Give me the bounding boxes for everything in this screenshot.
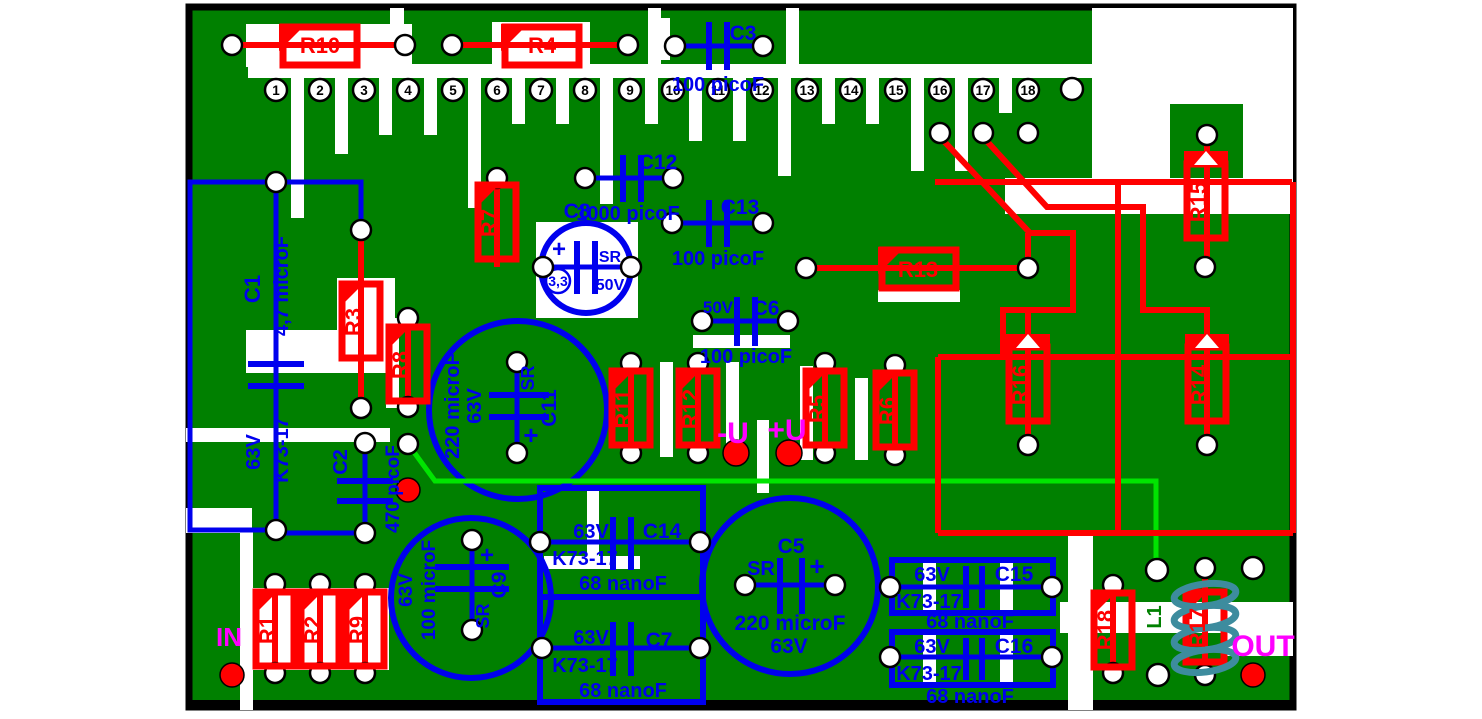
svg-text:5: 5: [449, 83, 457, 98]
pad: [930, 123, 950, 143]
voltage-C16: 63V: [914, 636, 950, 658]
value-C14: 68 nanoF: [579, 573, 667, 595]
type-C14: K73-17: [552, 548, 618, 570]
svg-text:13: 13: [799, 83, 815, 98]
label-R3: R3: [341, 308, 366, 336]
pad: [1018, 435, 1038, 455]
type-C15: K73-17: [896, 591, 962, 613]
label-C11: C11: [538, 389, 561, 427]
pad: [442, 35, 462, 55]
label-R9: R9: [345, 616, 370, 644]
label-R17: R17: [1185, 608, 1210, 648]
voltage-C14: 63V: [573, 521, 609, 543]
pin-7: 7: [530, 79, 552, 101]
voltage-C1: 63V: [243, 434, 265, 470]
pad: [266, 520, 286, 540]
svg-text:17: 17: [975, 83, 990, 98]
voltage-C15: 63V: [914, 564, 950, 586]
svg-text:4: 4: [404, 83, 412, 98]
value-C3: 100 picoF: [672, 74, 764, 96]
pad: [355, 433, 375, 453]
label-C9: C9: [488, 572, 511, 599]
pad: [355, 523, 375, 543]
pin-13: 13: [796, 79, 818, 101]
label-R6: R6: [875, 397, 900, 425]
label-C16: C16: [995, 635, 1034, 658]
label-plus-u: +U: [767, 414, 806, 447]
plus-C5: +: [809, 551, 824, 581]
value-C6: 100 picoF: [700, 346, 792, 368]
marking-C11: SR: [518, 365, 538, 390]
voltage-C11: 63V: [464, 388, 486, 424]
value-C11: 220 microF: [442, 353, 464, 459]
pad: [395, 35, 415, 55]
type-C7: K73-17: [552, 655, 618, 677]
pin-17: 17: [972, 79, 994, 101]
label-C13: C13: [721, 196, 760, 219]
marking-C8: SR: [599, 249, 622, 266]
pad: [665, 36, 685, 56]
pad: [1197, 435, 1217, 455]
pad: [690, 532, 710, 552]
pin-9: 9: [619, 79, 641, 101]
label-R15: R15: [1186, 182, 1211, 222]
value-C16: 68 nanoF: [926, 686, 1014, 708]
plus-C8: +: [552, 236, 566, 263]
pad: [222, 35, 242, 55]
pin-18: 18: [1017, 79, 1039, 101]
pad: [1195, 558, 1215, 578]
value-C1: 4,7 microF: [271, 236, 293, 336]
label-in: IN: [216, 622, 242, 652]
label-R1: R1: [255, 616, 280, 644]
pin-16: 16: [929, 79, 951, 101]
label-R16: R16: [1008, 365, 1033, 405]
label-R13: R13: [898, 257, 938, 282]
plus-C9: +: [480, 542, 494, 569]
label-R7: R7: [477, 209, 502, 237]
pad: [1018, 123, 1038, 143]
svg-text:6: 6: [493, 83, 501, 98]
pad: [351, 398, 371, 418]
pin-8: 8: [574, 79, 596, 101]
plus-C11: +: [523, 420, 538, 450]
pin-3: 3: [353, 79, 375, 101]
pin-2: 2: [309, 79, 331, 101]
svg-text:9: 9: [626, 83, 634, 98]
label-R8: R8: [388, 351, 413, 379]
label-C14: C14: [643, 520, 682, 543]
label-R2: R2: [300, 616, 325, 644]
pin-1: 1: [265, 79, 287, 101]
pad: [1042, 647, 1062, 667]
pad: [796, 258, 816, 278]
pad: [778, 311, 798, 331]
type-C16: K73-17: [896, 663, 962, 685]
pcb-layout-stage: 1 2 3 4 5 6 7 8 9 10 11 12 13 14 15 16 1…: [0, 0, 1482, 714]
label-C7: C7: [646, 629, 673, 652]
value-C13: 100 picoF: [672, 248, 764, 270]
label-R10: R10: [300, 33, 340, 58]
pad: [351, 220, 371, 240]
pin-14: 14: [840, 79, 862, 101]
voltage-C8: 50V: [596, 277, 625, 294]
value-C5: 220 microF: [735, 612, 846, 635]
value-C2: 470 picoF: [383, 445, 404, 533]
pad: [1195, 257, 1215, 277]
label-R12: R12: [678, 389, 703, 429]
pad: [825, 575, 845, 595]
label-R11: R11: [611, 389, 636, 428]
voltage-C6: 50V: [703, 298, 734, 317]
voltage-C9: 63V: [396, 573, 417, 607]
svg-text:18: 18: [1020, 83, 1036, 98]
pad: [1242, 557, 1264, 579]
pad: [1197, 125, 1217, 145]
pad: [1042, 577, 1062, 597]
pad: [1061, 78, 1083, 100]
label-C5: C5: [778, 535, 805, 558]
label-C1: C1: [240, 275, 265, 303]
svg-text:3: 3: [360, 83, 368, 98]
svg-text:16: 16: [932, 83, 948, 98]
pad: [266, 172, 286, 192]
voltage-C7: 63V: [573, 627, 609, 649]
label-L1: L1: [1144, 605, 1166, 628]
pad-in: [220, 663, 244, 687]
svg-text:7: 7: [537, 83, 545, 98]
pad: [1146, 559, 1168, 581]
pad: [973, 123, 993, 143]
label-C15: C15: [995, 563, 1034, 586]
value-C8: 3,3: [548, 273, 568, 289]
pin-5: 5: [442, 79, 464, 101]
pin-6: 6: [486, 79, 508, 101]
pcb-board-drawing: 1 2 3 4 5 6 7 8 9 10 11 12 13 14 15 16 1…: [0, 0, 1482, 714]
value-C7: 68 nanoF: [579, 680, 667, 702]
value-C15: 68 nanoF: [926, 611, 1014, 633]
svg-text:8: 8: [581, 83, 589, 98]
label-C12: C12: [639, 151, 678, 174]
svg-text:15: 15: [888, 83, 904, 98]
label-R5: R5: [805, 395, 830, 423]
pad-out: [1241, 663, 1265, 687]
label-R14: R14: [1187, 364, 1212, 405]
type-C1: K73-17: [271, 417, 293, 483]
svg-text:14: 14: [843, 83, 859, 98]
label-C8: C8: [564, 200, 591, 223]
label-C2: C2: [330, 449, 352, 475]
value-C9: 100 microF: [419, 540, 440, 640]
label-C6: C6: [753, 297, 780, 320]
marking-C5: SR: [747, 558, 775, 580]
label-minus-u: -U: [717, 417, 749, 450]
label-out: OUT: [1231, 630, 1294, 663]
pad: [690, 638, 710, 658]
label-R18: R18: [1093, 610, 1118, 650]
pin-15: 15: [885, 79, 907, 101]
svg-text:1: 1: [272, 83, 280, 98]
label-R4: R4: [528, 33, 557, 58]
pad: [621, 257, 641, 277]
voltage-C5: 63V: [770, 635, 807, 658]
pad: [532, 638, 552, 658]
pin-4: 4: [397, 79, 419, 101]
pad: [530, 532, 550, 552]
board-bottom-border: [189, 700, 1293, 710]
label-C3: C3: [730, 22, 757, 45]
pad: [575, 168, 595, 188]
value-C12: 1000 picoF: [576, 203, 679, 225]
pad: [618, 35, 638, 55]
marking-C9: SR: [473, 603, 493, 628]
pad: [1147, 664, 1169, 686]
svg-text:2: 2: [316, 83, 324, 98]
pad: [1018, 258, 1038, 278]
